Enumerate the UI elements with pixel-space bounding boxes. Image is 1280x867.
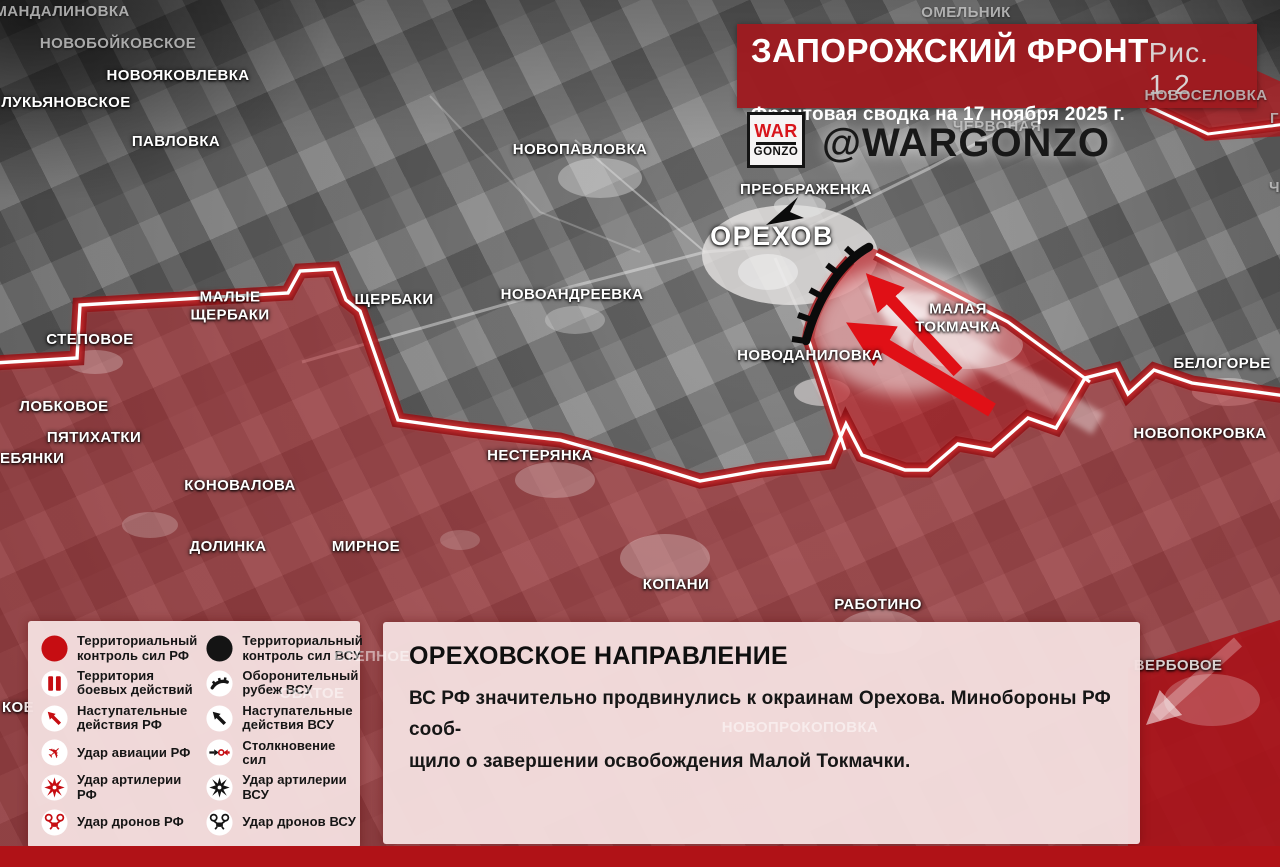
- town-label: НОВОБОЙКОВСКОЕ: [40, 35, 196, 53]
- town-label: ЛОБКОВОЕ: [19, 398, 108, 416]
- rf-drone-icon: [40, 808, 69, 837]
- rf-aviation-icon: ✈: [40, 738, 69, 767]
- info-panel-title: ОРЕХОВСКОЕ НАПРАВЛЕНИЕ: [409, 642, 1114, 671]
- town-label: МАЛАЯ ТОКМАЧКА: [915, 300, 1001, 335]
- vsu-drone-icon: [205, 808, 234, 837]
- rf-offense-arrow-icon: [40, 704, 69, 733]
- town-label: ЕБЯНКИ: [0, 450, 64, 468]
- legend-item-label: Удар дронов РФ: [77, 815, 184, 829]
- bottom-red-strip: [0, 846, 1280, 867]
- town-label: КОНОВАЛОВА: [184, 477, 296, 495]
- town-label: Г: [1270, 110, 1279, 128]
- town-label-watermark: НОВОПРОКОПОВКА: [722, 719, 879, 737]
- town-label: БЕЛОГОРЬЕ: [1173, 355, 1270, 373]
- map-canvas: МАНДАЛИНОВКА НОВОБОЙКОВСКОЕ ОМЕЛЬНИК НОВ…: [0, 0, 1280, 867]
- vsu-territorial-control-icon: [205, 634, 234, 663]
- town-label-orekhov: ОРЕХОВ: [710, 221, 834, 253]
- town-label-watermark: ОВАТОЕ: [280, 685, 345, 703]
- town-label: ПРЕОБРАЖЕНКА: [740, 181, 872, 199]
- combat-zone-icon: [40, 669, 69, 698]
- town-label: НОВОЯКОВЛЕВКА: [106, 67, 249, 85]
- legend-item-label: Территория боевых действий: [77, 669, 197, 698]
- town-label: ЛУКЬЯНОВСКОЕ: [1, 94, 130, 112]
- town-label: КОПАНИ: [643, 576, 709, 594]
- legend-item-label: Удар авиации РФ: [77, 746, 190, 760]
- town-label: РАБОТИНО: [834, 596, 922, 614]
- vsu-offense-arrow-icon: [205, 704, 234, 733]
- legend-item: Территориальный контроль сил РФ: [40, 634, 197, 663]
- legend-item-label: Удар дронов ВСУ: [242, 815, 356, 829]
- page-title: ЗАПОРОЖСКИЙ ФРОНТ: [751, 32, 1149, 70]
- town-label: МАЛЫЕ ЩЕРБАКИ: [190, 288, 269, 323]
- legend-item: Удар артилерии РФ: [40, 773, 197, 802]
- logo-war-text: WAR: [754, 122, 798, 140]
- town-label: ОМЕЛЬНИК: [921, 4, 1010, 22]
- town-label: ПАВЛОВКА: [132, 133, 220, 151]
- town-label: НОВОАНДРЕЕВКА: [501, 286, 644, 304]
- town-label: ВЕРБОВОЕ: [1134, 657, 1223, 675]
- town-label: ПЯТИХАТКИ: [47, 429, 141, 447]
- town-label: ЩЕРБАКИ: [354, 291, 433, 309]
- clash-icon: [205, 738, 234, 767]
- legend-item-label: Территориальный контроль сил РФ: [77, 634, 197, 663]
- legend-panel: Территориальный контроль сил РФ Территор…: [28, 621, 360, 848]
- town-label: МИРНОЕ: [332, 538, 400, 556]
- rf-artillery-icon: [40, 773, 69, 802]
- town-label: Ч: [1269, 179, 1280, 197]
- legend-item: Наступательные действия РФ: [40, 704, 197, 733]
- logo-divider: [756, 142, 797, 145]
- wargonzo-logo: WAR GONZO: [747, 112, 805, 168]
- legend-item-label: Удар артилерии ВСУ: [242, 773, 362, 802]
- town-label: НОВОСЕЛОВКА: [1145, 87, 1268, 105]
- rf-territorial-control-icon: [40, 634, 69, 663]
- legend-item: Удар артилерии ВСУ: [205, 773, 362, 802]
- info-panel-text-line: щило о завершении освобождения Малой Ток…: [409, 746, 1114, 777]
- logo-gonzo-text: GONZO: [754, 147, 799, 159]
- town-label: МАНДАЛИНОВКА: [0, 3, 130, 21]
- legend-item-label: Наступательные действия ВСУ: [242, 704, 362, 733]
- legend-item: Удар дронов РФ: [40, 808, 197, 837]
- legend-item-label: Столкновение сил: [242, 739, 362, 768]
- vsu-defense-line-icon: [205, 669, 234, 698]
- legend-item: Столкновение сил: [205, 738, 362, 767]
- town-label: СТЕПОВОЕ: [46, 331, 133, 349]
- town-label: НОВОДАНИЛОВКА: [737, 347, 883, 365]
- legend-item: Удар дронов ВСУ: [205, 808, 362, 837]
- vsu-artillery-icon: [205, 773, 234, 802]
- wargonzo-handle: @WARGONZO: [822, 121, 1110, 166]
- legend-item: Наступательные действия ВСУ: [205, 704, 362, 733]
- legend-item-label: Наступательные действия РФ: [77, 704, 197, 733]
- town-label: НОВОПОКРОВКА: [1133, 425, 1266, 443]
- legend-item: Территория боевых действий: [40, 669, 197, 698]
- town-label: НОВОПАВЛОВКА: [513, 141, 648, 159]
- legend-item: ✈ Удар авиации РФ: [40, 738, 197, 767]
- town-label: НЕСТЕРЯНКА: [487, 447, 593, 465]
- legend-item-label: Удар артилерии РФ: [77, 773, 197, 802]
- town-label: ДОЛИНКА: [190, 538, 267, 556]
- town-label-watermark: СТЕПНОЕ: [334, 648, 410, 666]
